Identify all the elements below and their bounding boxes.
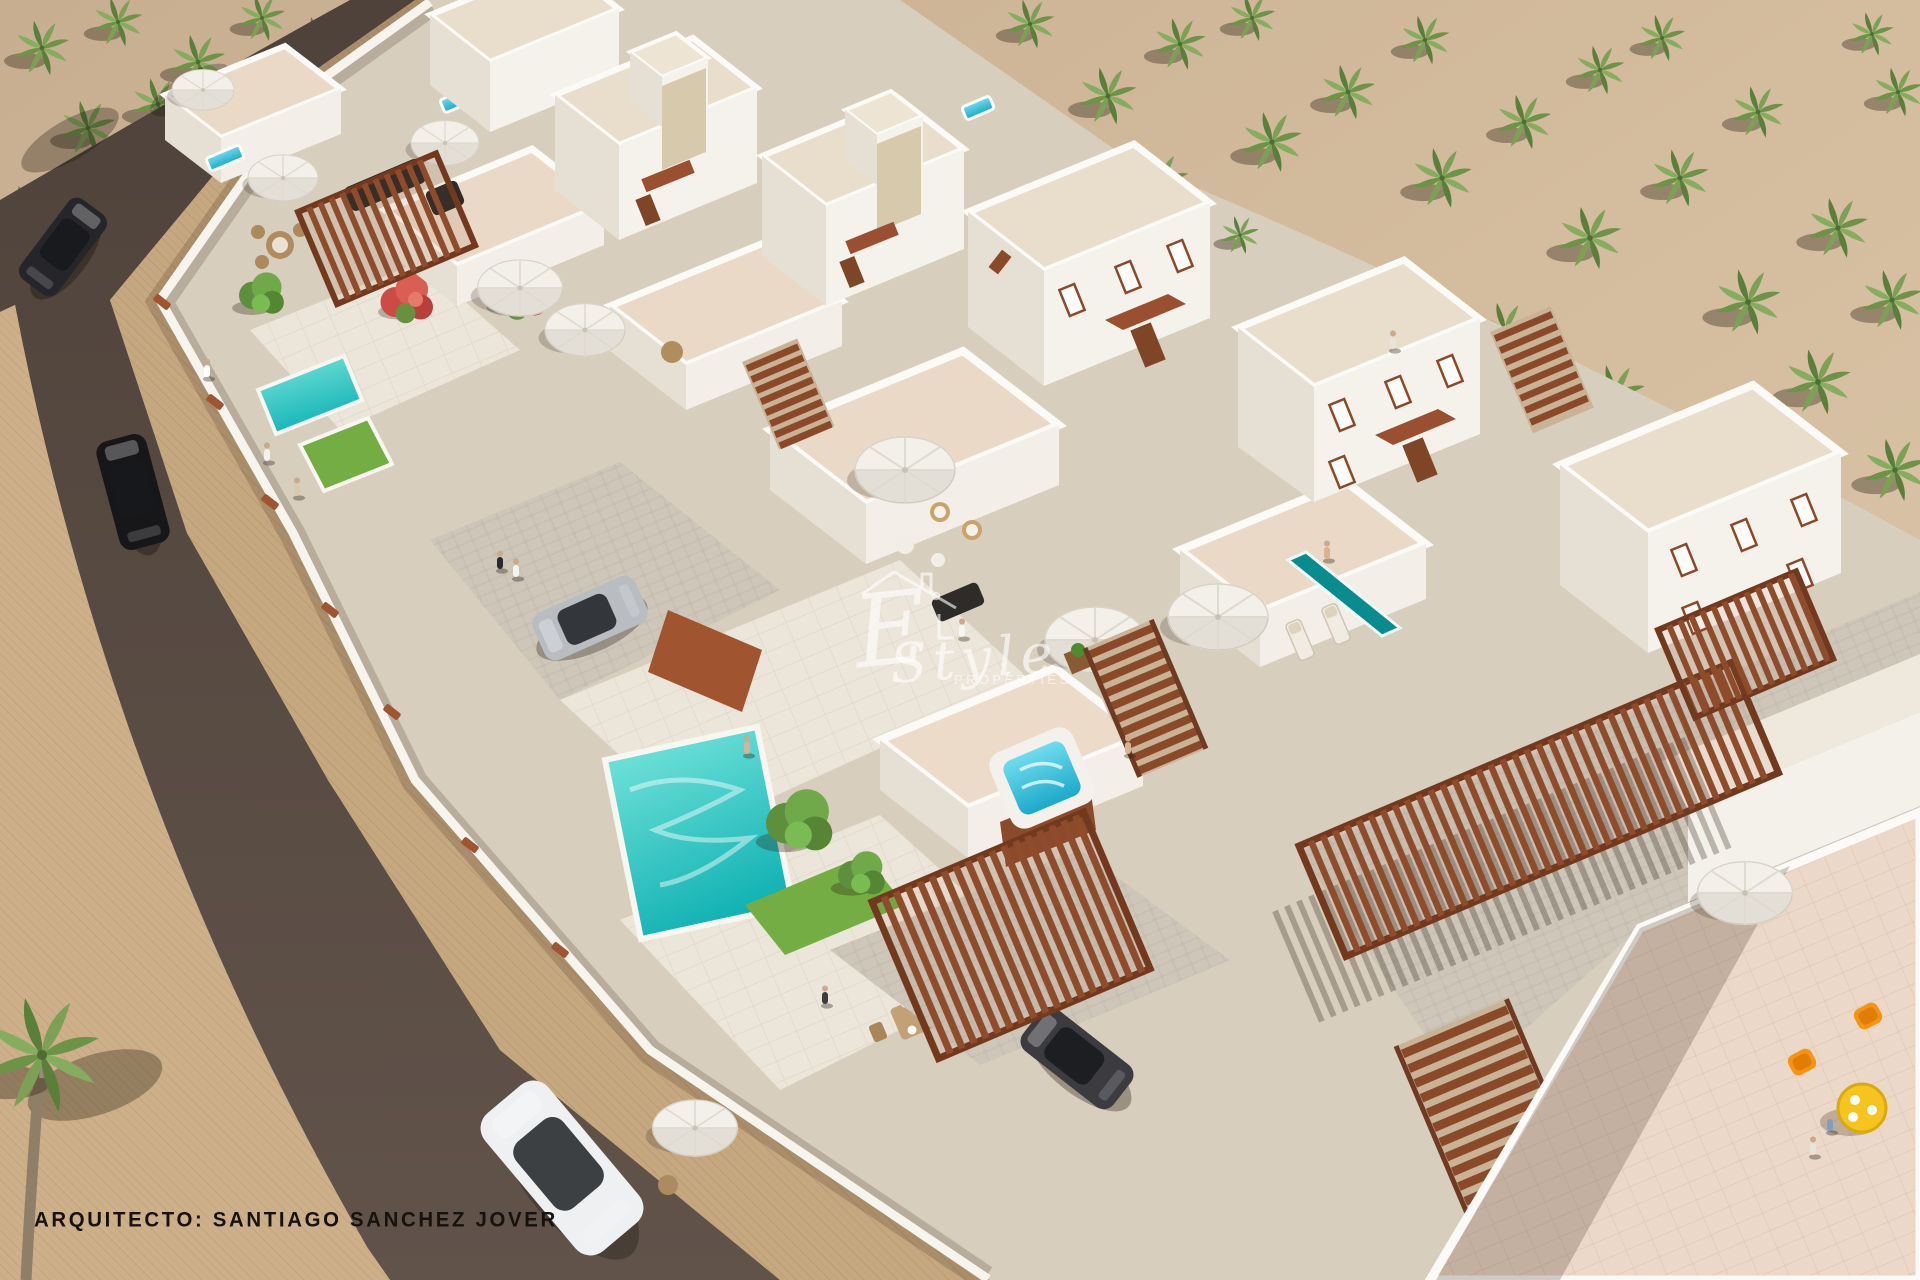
yellow-table	[1838, 1084, 1886, 1132]
scene-graphic	[0, 0, 1920, 1280]
terrace-table	[661, 341, 683, 363]
render-canvas: E Style PROPERTIES ARQUITECTO: SANTIAGO …	[0, 0, 1920, 1280]
stone-accent-panel	[877, 126, 921, 232]
architect-credit: ARQUITECTO: SANTIAGO SANCHEZ JOVER	[34, 1208, 558, 1233]
